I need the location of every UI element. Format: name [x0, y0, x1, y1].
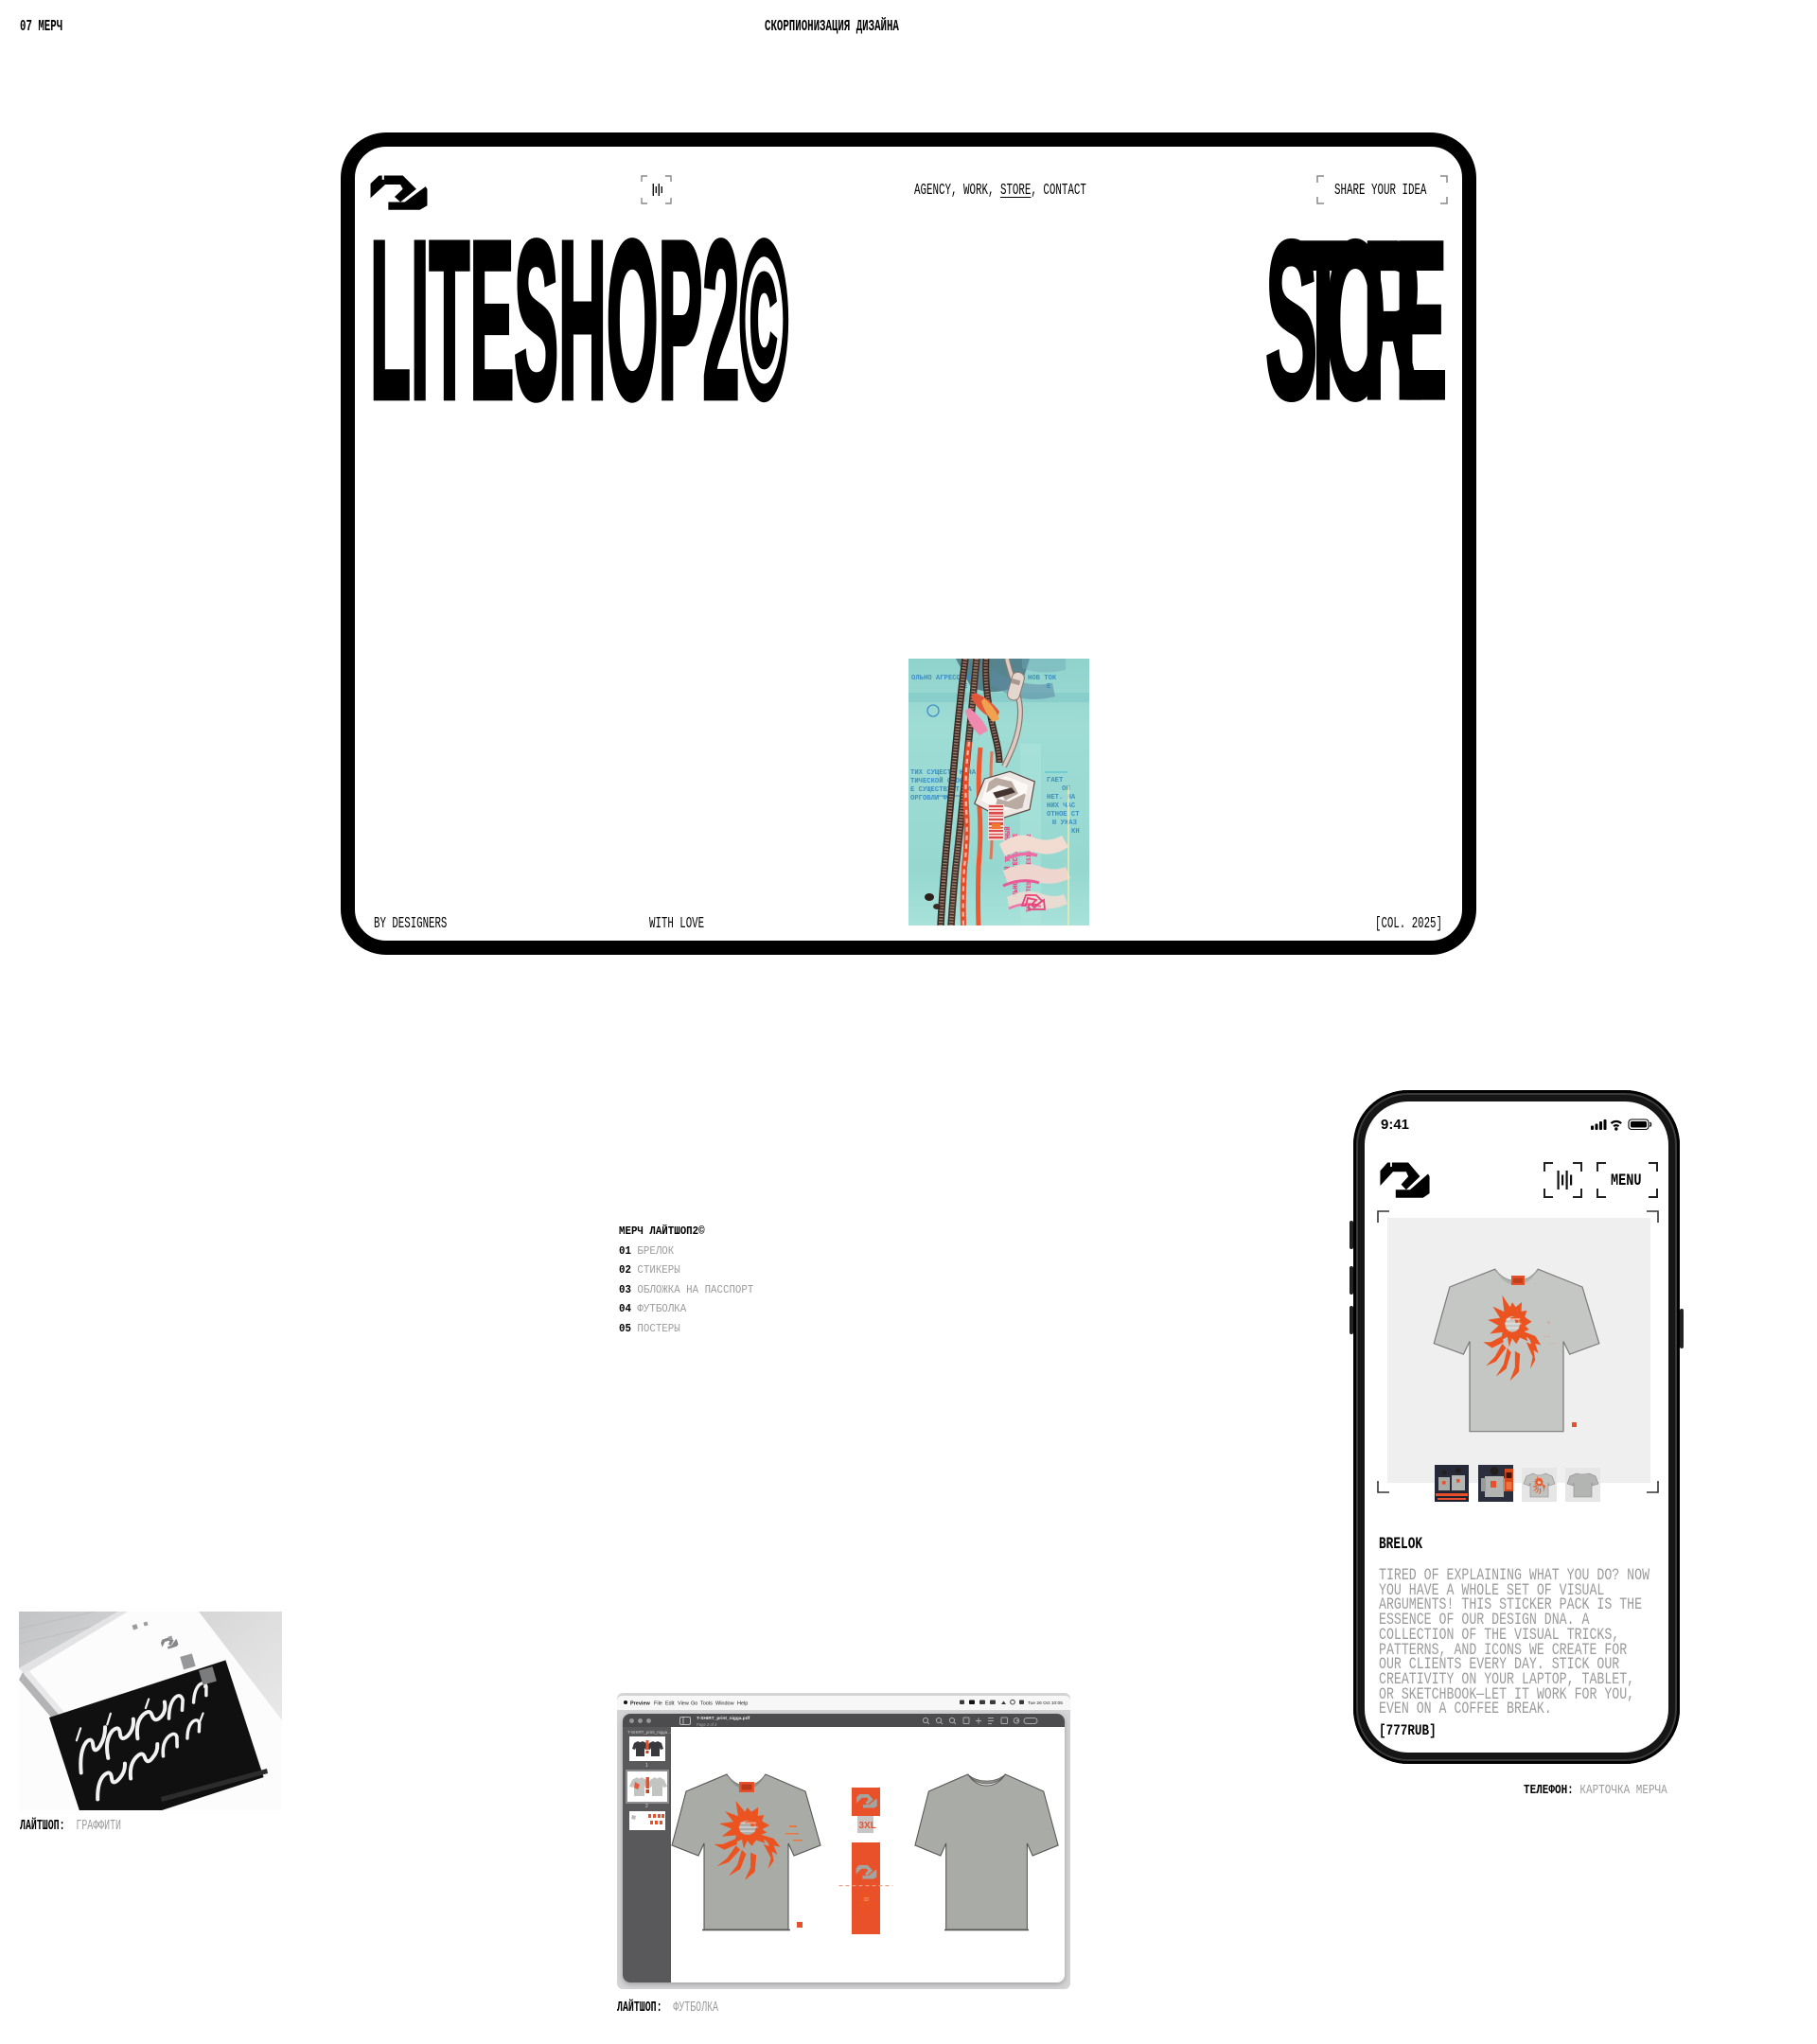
- svg-text:ТИЧЕСКОЙ ОРОНИ: ТИЧЕСКОЙ ОРОНИ: [910, 777, 967, 785]
- svg-text:View: View: [678, 1701, 689, 1707]
- svg-text:ГАЕТ: ГАЕТ: [1047, 777, 1064, 784]
- svg-text:Tue 26 Oct 10:05: Tue 26 Oct 10:05: [1028, 1700, 1063, 1706]
- svg-text:НЕТ. НА: НЕТ. НА: [1047, 794, 1076, 802]
- svg-text:Ю УКАЗ: Ю УКАЗ: [1052, 819, 1078, 827]
- svg-text:Preview: Preview: [630, 1701, 651, 1707]
- svg-text:Go: Go: [691, 1701, 697, 1707]
- svg-text:‒‒‒: ‒‒‒: [1544, 1335, 1551, 1339]
- svg-text:⊙: ⊙: [1547, 1321, 1550, 1326]
- svg-text:ОТНОЕ СТ: ОТНОЕ СТ: [1047, 811, 1080, 819]
- svg-text:НИХ ЧАС: НИХ ЧАС: [1047, 802, 1076, 810]
- svg-text:‒‒: ‒‒: [1551, 1342, 1556, 1346]
- svg-text:НОВ ТОК: НОВ ТОК: [1028, 675, 1057, 682]
- svg-text:LITESHOP2©: LITESHOP2©: [370, 232, 788, 412]
- svg-text:Е: Е: [1047, 683, 1051, 691]
- svg-text:Help: Help: [737, 1701, 748, 1707]
- svg-text:Edit: Edit: [665, 1701, 675, 1707]
- svg-text:КН: КН: [1071, 828, 1080, 836]
- svg-text:Tools: Tools: [700, 1701, 713, 1707]
- svg-text:E: E: [1395, 232, 1447, 412]
- svg-text:3XL: 3XL: [859, 1821, 876, 1831]
- svg-text:Window: Window: [715, 1701, 734, 1707]
- svg-text:File: File: [654, 1701, 662, 1707]
